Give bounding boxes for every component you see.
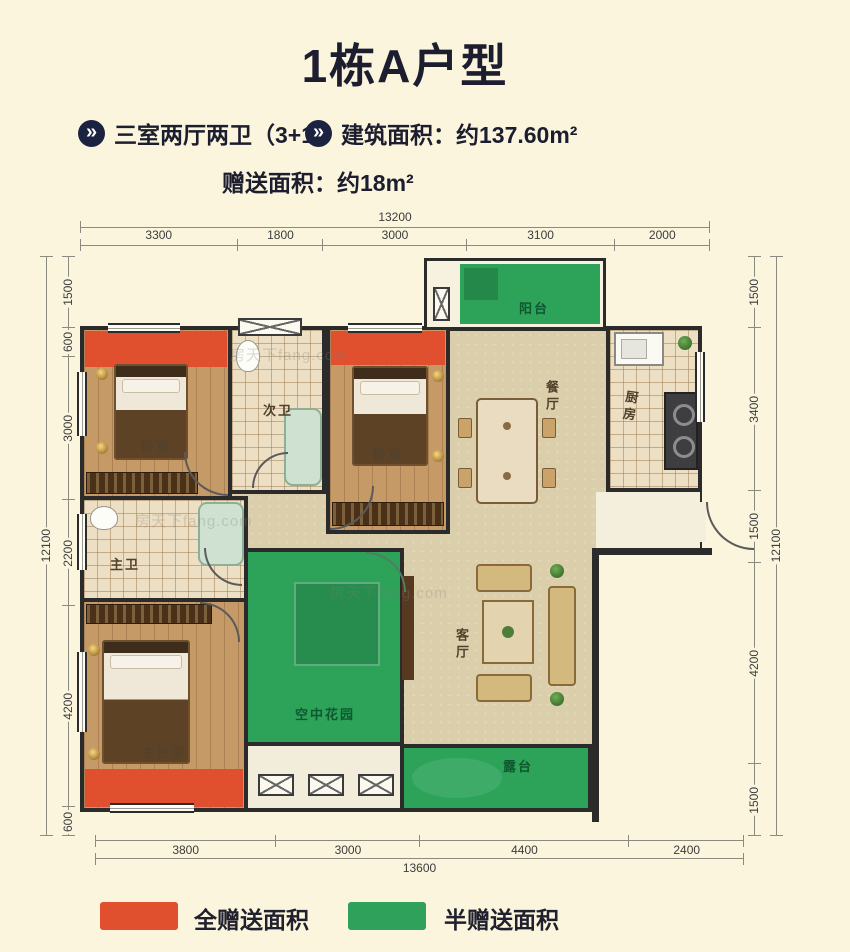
dim-right-total: 12100 bbox=[766, 256, 786, 836]
dim-bottom-segments: 3800 3000 4400 2400 bbox=[95, 840, 744, 858]
legend-swatch-full-gift bbox=[100, 902, 178, 930]
chair bbox=[542, 418, 556, 438]
legend-label-half-gift: 半赠送面积 bbox=[444, 901, 559, 935]
window bbox=[110, 803, 194, 813]
dim-value: 1500 bbox=[744, 764, 764, 836]
kitchen-stove bbox=[664, 392, 698, 470]
room-label-terrace: 露台 bbox=[478, 756, 558, 775]
sofa bbox=[548, 586, 576, 686]
chair bbox=[458, 468, 472, 488]
dim-bottom-total: 13600 bbox=[95, 858, 744, 876]
window bbox=[695, 352, 705, 422]
kitchen-sink-counter bbox=[614, 332, 664, 366]
legend-swatch-half-gift bbox=[348, 902, 426, 930]
balcony-planter bbox=[464, 268, 498, 300]
arrow-bullet-icon: » bbox=[78, 120, 105, 147]
chair bbox=[458, 418, 472, 438]
room-label-bedroom2: 卧室 bbox=[338, 444, 438, 463]
dim-value: 1800 bbox=[238, 228, 324, 246]
dim-top-segments: 3300 1800 3000 3100 2000 bbox=[80, 228, 710, 246]
plant bbox=[550, 564, 564, 578]
watermark: 房天下fang.com bbox=[330, 582, 448, 603]
dim-value: 4200 bbox=[744, 563, 764, 764]
toilet bbox=[90, 506, 118, 530]
dim-value: 2000 bbox=[615, 228, 710, 246]
closet-x-icon bbox=[238, 318, 302, 336]
full-gift-band bbox=[85, 331, 227, 367]
dim-value: 3000 bbox=[276, 840, 419, 858]
room-balcony bbox=[424, 258, 606, 330]
window bbox=[348, 323, 422, 333]
dim-value: 3800 bbox=[95, 840, 276, 858]
lamp bbox=[88, 644, 100, 656]
arrow-bullet-icon: » bbox=[305, 120, 332, 147]
dim-value: 1500 bbox=[58, 256, 78, 328]
feature-layout: » 三室两厅两卫（3+1） bbox=[78, 116, 337, 150]
wardrobe bbox=[86, 472, 198, 494]
watermark: 房天下fang.com bbox=[230, 344, 348, 365]
dim-value: 3000 bbox=[58, 357, 78, 501]
floorplan-poster: 1栋A户型 » 三室两厅两卫（3+1） » 建筑面积：约137.60m² 赠送面… bbox=[0, 0, 850, 952]
feature-area-text: 建筑面积：约137.60m² bbox=[341, 116, 577, 150]
dining-table bbox=[476, 398, 538, 504]
room-label-master-bath: 主卫 bbox=[85, 554, 165, 573]
room-label-balcony: 阳台 bbox=[504, 298, 564, 317]
sofa bbox=[476, 674, 532, 702]
dim-value: 3100 bbox=[467, 228, 615, 246]
entry-porch bbox=[596, 492, 700, 550]
bathtub bbox=[284, 408, 322, 486]
outside-area bbox=[592, 548, 712, 822]
entry-door-arc bbox=[706, 502, 754, 550]
wardrobe bbox=[86, 604, 212, 624]
bonus-area-text: 赠送面积：约18m² bbox=[222, 164, 414, 198]
watermark: 房天下fang.com bbox=[135, 510, 253, 531]
plant bbox=[678, 336, 692, 350]
window bbox=[108, 323, 180, 333]
dim-value: 1500 bbox=[744, 256, 764, 328]
full-gift-band bbox=[85, 769, 243, 807]
vent-x-icon bbox=[308, 774, 344, 796]
plant bbox=[550, 692, 564, 706]
dim-value: 3300 bbox=[80, 228, 238, 246]
dim-value: 600 bbox=[58, 807, 78, 836]
dim-value: 3000 bbox=[323, 228, 466, 246]
dim-value: 3400 bbox=[744, 328, 764, 491]
dim-value: 4200 bbox=[58, 606, 78, 807]
dim-left-total: 12100 bbox=[36, 256, 56, 836]
dim-value: 2200 bbox=[58, 500, 78, 605]
dim-top-total: 13200 bbox=[80, 210, 710, 228]
window bbox=[77, 652, 87, 732]
chair bbox=[542, 468, 556, 488]
lamp bbox=[88, 748, 100, 760]
dim-value: 600 bbox=[58, 328, 78, 357]
sofa bbox=[476, 564, 532, 592]
room-label-bedroom1: 卧室 bbox=[106, 436, 206, 455]
dim-value: 12100 bbox=[36, 256, 56, 836]
coffee-table bbox=[482, 600, 534, 664]
room-label-second-bath: 次卫 bbox=[238, 400, 318, 419]
dim-value: 13600 bbox=[95, 858, 744, 876]
dim-value: 13200 bbox=[80, 210, 710, 228]
room-label-sky-garden: 空中花园 bbox=[270, 704, 380, 723]
feature-area: » 建筑面积：约137.60m² bbox=[305, 116, 577, 150]
room-label-master-bedroom: 主卧室 bbox=[104, 742, 224, 761]
room-label-living: 客厅 bbox=[452, 628, 471, 662]
room-label-dining: 餐厅 bbox=[542, 380, 561, 414]
vent-x-icon bbox=[258, 774, 294, 796]
floorplan-drawing: 阳台 卧室 次卫 卧室 餐厅 厨房 主卫 主卧室 空中花园 客厅 露台 房天下f… bbox=[80, 252, 710, 838]
feature-layout-text: 三室两厅两卫（3+1） bbox=[114, 116, 337, 150]
dim-left-segments: 1500 600 3000 2200 4200 600 bbox=[58, 256, 78, 836]
lamp bbox=[96, 368, 108, 380]
dim-value: 4400 bbox=[420, 840, 630, 858]
full-gift-band bbox=[331, 331, 445, 365]
dim-value: 2400 bbox=[629, 840, 744, 858]
window bbox=[77, 372, 87, 436]
page-title: 1栋A户型 bbox=[0, 30, 810, 96]
entry-door-gap bbox=[692, 502, 706, 542]
dim-value: 12100 bbox=[766, 256, 786, 836]
vent-x-icon bbox=[358, 774, 394, 796]
shaft-x-icon bbox=[433, 287, 450, 321]
legend-label-full-gift: 全赠送面积 bbox=[194, 901, 309, 935]
lamp bbox=[432, 370, 444, 382]
